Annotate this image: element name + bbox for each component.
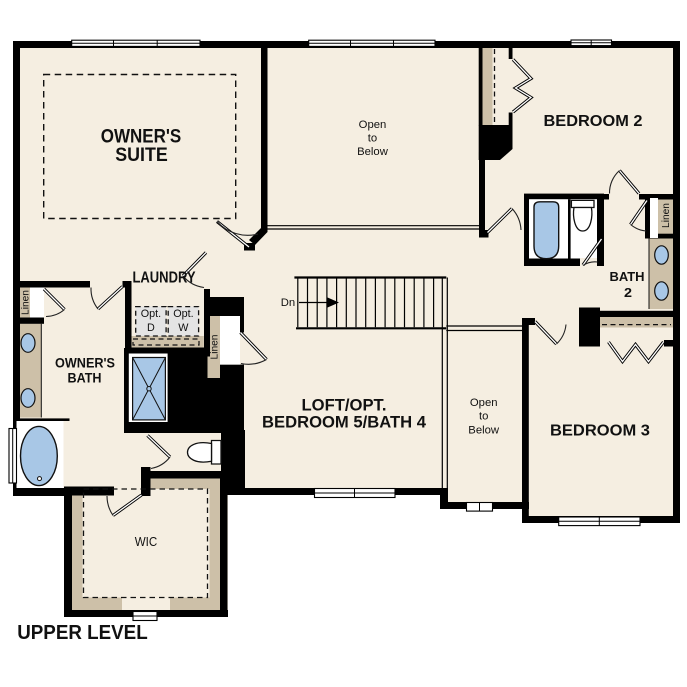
svg-text:Linen: Linen [210,335,221,360]
svg-text:Linen: Linen [20,290,31,315]
svg-text:OWNER'S: OWNER'S [55,355,115,370]
svg-text:to: to [368,133,377,145]
svg-text:UPPER LEVEL: UPPER LEVEL [17,622,148,644]
svg-text:Below: Below [468,424,500,436]
svg-text:Linen: Linen [661,203,672,228]
svg-text:2: 2 [624,285,632,300]
svg-text:LOFT/OPT.: LOFT/OPT. [302,395,387,414]
svg-text:SUITE: SUITE [115,145,168,166]
svg-text:Below: Below [357,146,389,158]
svg-text:D: D [147,322,155,334]
svg-text:LAUNDRY: LAUNDRY [133,269,196,286]
svg-text:Opt.: Opt. [141,308,161,320]
svg-text:Open: Open [359,119,387,131]
svg-text:BATH: BATH [68,370,102,385]
svg-text:Dn: Dn [281,297,295,309]
svg-text:to: to [479,411,488,423]
svg-text:Open: Open [470,397,498,409]
svg-text:BATH: BATH [610,269,645,284]
svg-text:WIC: WIC [135,535,158,549]
svg-text:W: W [178,322,189,334]
svg-text:BEDROOM 2: BEDROOM 2 [544,113,643,130]
svg-text:BEDROOM 5/BATH 4: BEDROOM 5/BATH 4 [262,413,427,432]
svg-text:BEDROOM 3: BEDROOM 3 [550,423,650,440]
svg-text:Opt.: Opt. [173,308,193,320]
